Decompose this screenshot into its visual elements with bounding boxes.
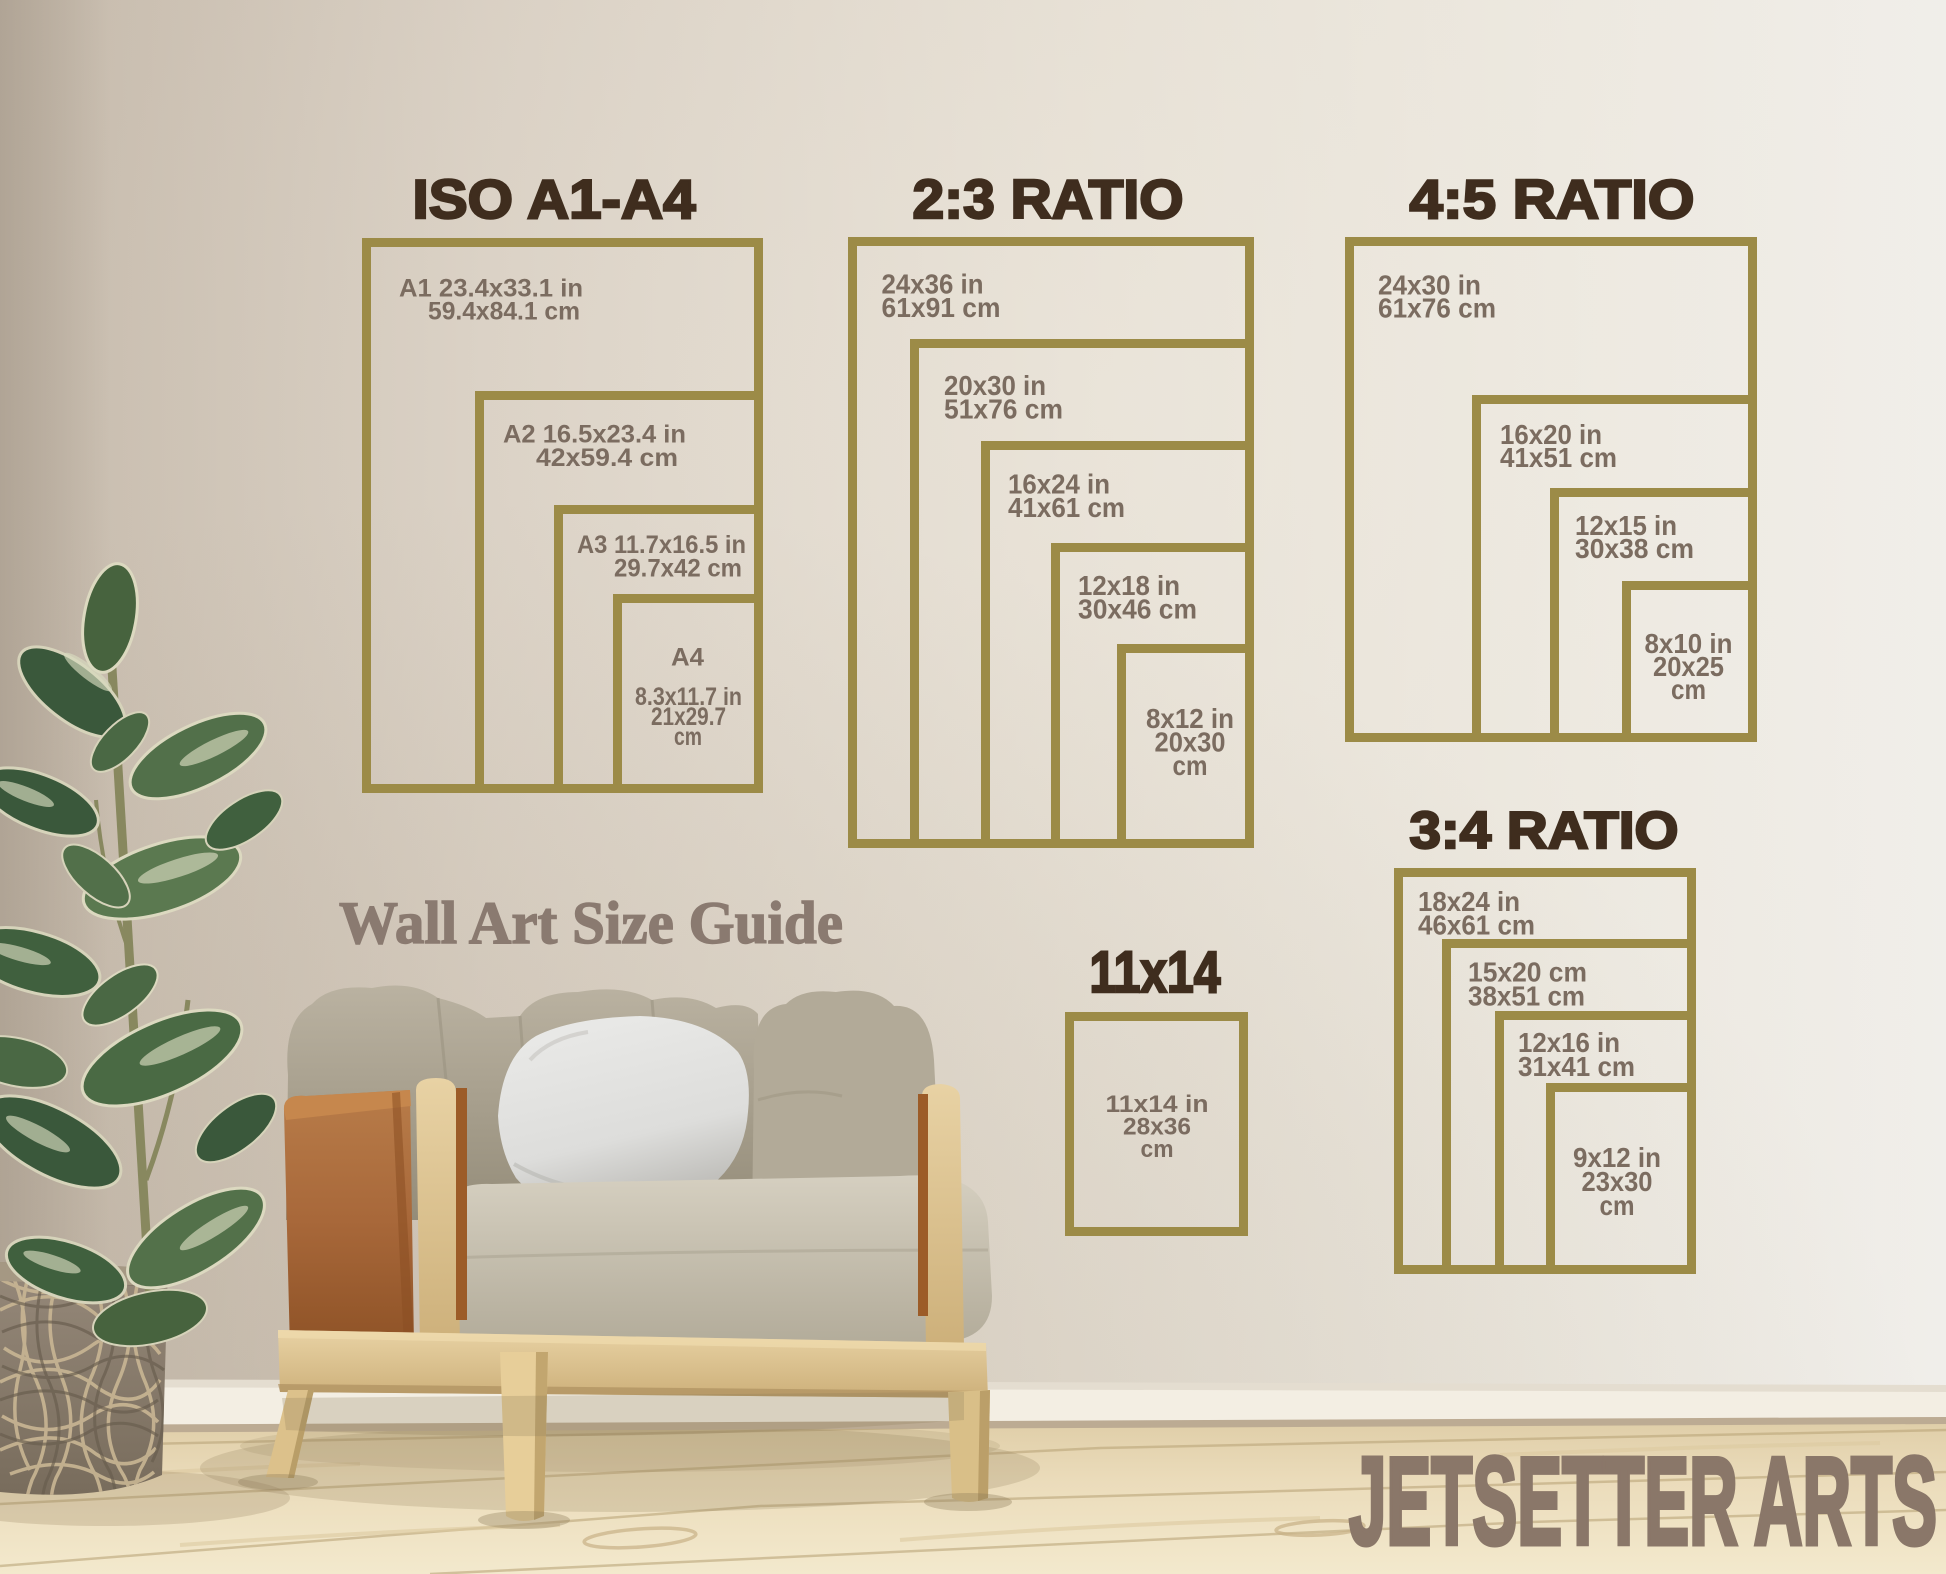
- svg-text:ISO A1-A4: ISO A1-A4: [413, 168, 696, 230]
- svg-text:JETSETTER ARTS: JETSETTER ARTS: [1349, 1433, 1937, 1571]
- svg-text:cm: cm: [1671, 674, 1706, 705]
- svg-text:cm: cm: [1173, 750, 1208, 781]
- svg-text:61x91 cm: 61x91 cm: [882, 292, 1001, 323]
- svg-text:cm: cm: [1600, 1190, 1635, 1221]
- svg-text:4:5 RATIO: 4:5 RATIO: [1410, 168, 1695, 230]
- svg-text:30x38 cm: 30x38 cm: [1575, 533, 1694, 564]
- svg-text:cm: cm: [674, 723, 702, 751]
- svg-text:A4: A4: [671, 644, 704, 672]
- svg-text:11x14: 11x14: [1090, 940, 1221, 1005]
- svg-text:3:4 RATIO: 3:4 RATIO: [1410, 802, 1679, 860]
- svg-text:42x59.4 cm: 42x59.4 cm: [536, 444, 678, 472]
- svg-text:38x51 cm: 38x51 cm: [1468, 981, 1585, 1012]
- svg-text:46x61 cm: 46x61 cm: [1418, 910, 1535, 941]
- svg-text:41x61 cm: 41x61 cm: [1008, 492, 1125, 523]
- svg-text:30x46 cm: 30x46 cm: [1078, 594, 1197, 625]
- svg-text:59.4x84.1 cm: 59.4x84.1 cm: [428, 298, 580, 326]
- svg-text:41x51 cm: 41x51 cm: [1500, 442, 1617, 473]
- svg-text:cm: cm: [1141, 1136, 1174, 1163]
- svg-text:29.7x42 cm: 29.7x42 cm: [614, 555, 742, 583]
- svg-text:31x41 cm: 31x41 cm: [1518, 1051, 1635, 1082]
- svg-text:2:3 RATIO: 2:3 RATIO: [913, 168, 1184, 230]
- svg-text:61x76 cm: 61x76 cm: [1378, 293, 1496, 324]
- svg-text:51x76 cm: 51x76 cm: [944, 394, 1063, 425]
- svg-text:Wall Art Size Guide: Wall Art Size Guide: [339, 890, 843, 956]
